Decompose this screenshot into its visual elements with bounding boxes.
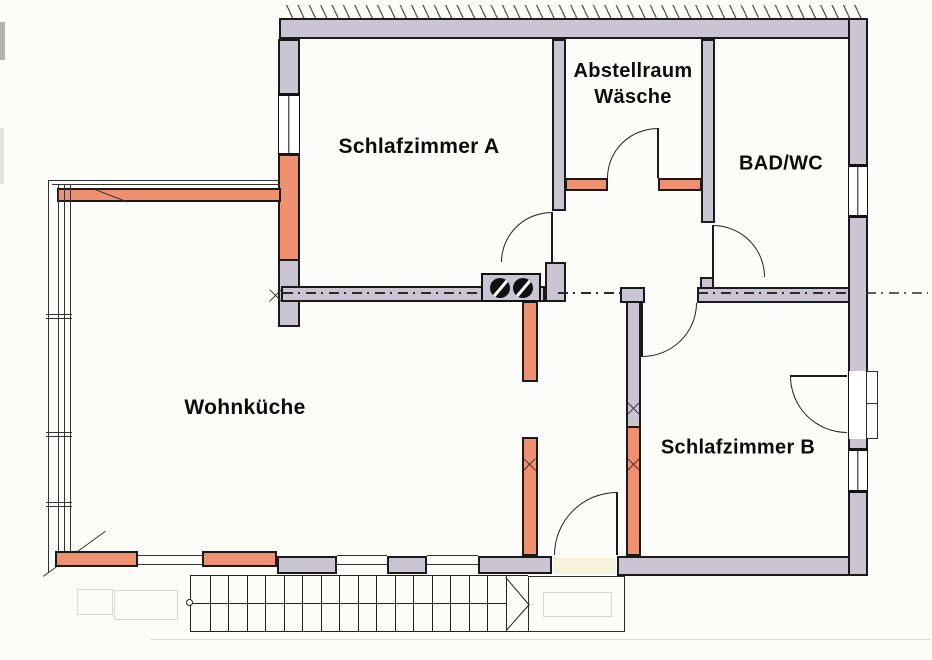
balcony-door-opening <box>848 371 868 439</box>
south-window-line-3b <box>427 564 478 565</box>
stair-step-line <box>265 576 266 631</box>
new-wall-schlafzimmer-b-west <box>626 426 641 556</box>
wall-south-block-3 <box>478 556 552 574</box>
south-window-line-1a <box>138 555 202 556</box>
stair-handrail <box>192 603 506 604</box>
wall-west-schlafzimmer-a-upper <box>278 39 300 95</box>
glass-front-outer-west <box>48 180 49 572</box>
window-schlafzimmer-a <box>278 93 300 156</box>
stair-step-line <box>506 576 507 631</box>
stair-step-line <box>358 576 359 631</box>
wall-south-block-2 <box>387 556 427 574</box>
wall-exterior-south-schlafzimmer-b <box>617 556 850 576</box>
room-label-schlafzimmer-b: Schlafzimmer B <box>661 437 815 460</box>
new-partition-hall-lower <box>522 437 538 556</box>
stair-step-line <box>395 576 396 631</box>
new-wall-abstellraum-south-right <box>658 178 702 191</box>
new-wall-west-schlafzimmer-a <box>278 154 300 261</box>
wall-break-mark <box>626 401 641 416</box>
room-label-abstellraum-line1: Abstellraum <box>574 58 693 84</box>
stair-step-line <box>247 576 248 631</box>
wall-exterior-east-lower <box>848 491 868 576</box>
wall-bad-south <box>697 287 850 303</box>
floor-plan: Schlafzimmer A Abstellraum Wäsche BAD/WC… <box>0 0 932 660</box>
glass-front-divider-2 <box>46 432 72 437</box>
section-dash-line-2 <box>558 292 626 294</box>
section-dash-line-4 <box>866 292 928 294</box>
glass-front-west-line-1 <box>58 185 59 553</box>
stair-step-line <box>284 576 285 631</box>
new-window-band-wohnkueche-north <box>57 188 281 202</box>
new-wall-abstellraum-south-left <box>565 178 608 191</box>
new-partition-hall-upper <box>522 301 538 382</box>
south-window-line-1b <box>138 564 202 565</box>
wall-break-mark <box>522 457 537 472</box>
stair-break-line <box>506 604 530 631</box>
stair-step-line <box>376 576 377 631</box>
wall-stub-hall-west <box>545 262 566 302</box>
door-arc-bad-wc <box>713 225 765 277</box>
glass-front-outer-top <box>48 180 280 181</box>
room-label-wohnkueche: Wohnküche <box>184 396 305 420</box>
wall-break-mark <box>268 288 283 303</box>
wall-south-block-1 <box>277 556 337 574</box>
stair-handrail-post <box>186 599 193 606</box>
wall-abstellraum-bad <box>701 39 715 223</box>
section-dash-line-1 <box>283 292 480 294</box>
balcony-threshold <box>866 371 878 439</box>
new-sill-south-2 <box>202 551 277 567</box>
stair-step-line <box>210 576 211 631</box>
south-window-line-3a <box>427 555 478 556</box>
stair-step-line <box>321 576 322 631</box>
door-arc-schlafzimmer-b <box>642 303 697 357</box>
room-label-bad-wc: BAD/WC <box>739 153 823 176</box>
stair-step-line <box>228 576 229 631</box>
section-dash-line-3 <box>698 292 846 294</box>
window-schlafzimmer-b <box>848 448 868 493</box>
exterior-hatch-marks <box>282 5 862 18</box>
wall-exterior-east-mid <box>848 216 868 373</box>
wall-exterior-east-upper <box>848 18 868 166</box>
stair-step-line <box>487 576 488 631</box>
room-label-abstellraum-line2: Wäsche <box>574 84 693 110</box>
wall-exterior-north <box>279 18 868 39</box>
scan-artifact <box>114 590 178 620</box>
glass-front-divider-3 <box>46 502 72 507</box>
room-label-abstellraum: Abstellraum Wäsche <box>574 58 693 110</box>
staircase-steps <box>190 575 528 632</box>
scan-crease <box>150 639 930 640</box>
glass-front-west-line-2 <box>64 185 65 553</box>
scan-artifact <box>543 592 612 617</box>
wall-schlafzimmer-a-abstellraum <box>552 39 566 211</box>
scan-edge-mark <box>0 22 5 60</box>
glass-front-divider-1 <box>46 314 72 319</box>
stair-step-line <box>432 576 433 631</box>
south-window-line-2a <box>337 555 387 556</box>
scan-artifact <box>77 589 113 615</box>
new-sill-south-1 <box>55 551 138 567</box>
stair-step-line <box>302 576 303 631</box>
stair-step-line <box>469 576 470 631</box>
glass-front-west-line-3 <box>70 185 71 553</box>
entrance-threshold <box>553 558 616 574</box>
burner-icon <box>513 278 533 298</box>
wall-break-mark <box>626 457 641 472</box>
door-arc-abstellraum <box>607 128 658 178</box>
scan-edge-mark <box>0 128 4 184</box>
stair-step-line <box>339 576 340 631</box>
room-label-schlafzimmer-a: Schlafzimmer A <box>339 135 500 159</box>
stair-break-line <box>505 577 529 605</box>
door-arc-entrance <box>554 492 617 555</box>
door-arc-schlafzimmer-a <box>501 212 552 262</box>
balcony-threshold-line <box>866 403 878 404</box>
stair-step-line <box>450 576 451 631</box>
burner-icon <box>490 278 510 298</box>
glass-front-inner-top <box>52 184 280 185</box>
stove-symbol <box>481 273 541 302</box>
door-arc-balcony <box>790 376 847 433</box>
window-bad-wc <box>848 164 868 218</box>
south-window-line-2b <box>337 564 387 565</box>
stair-step-line <box>413 576 414 631</box>
